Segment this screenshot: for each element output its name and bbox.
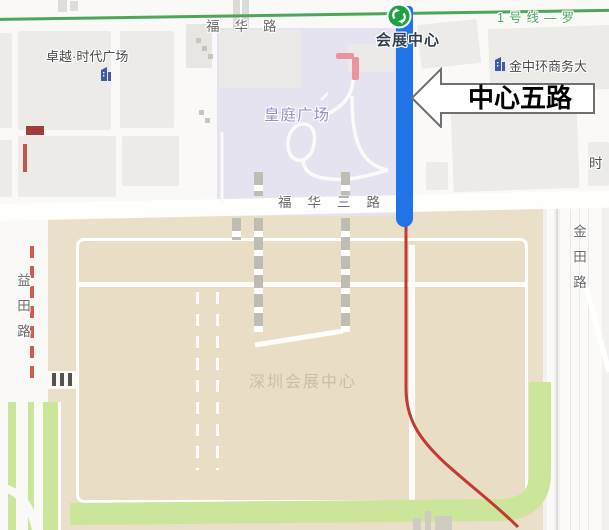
pink-marker (352, 57, 359, 80)
map-decoration (70, 1, 78, 11)
station-label-huizhanzhongxin: 会展中心 (376, 29, 440, 50)
map-decoration (413, 518, 421, 530)
building-icon (99, 66, 112, 81)
map-decoration (196, 38, 201, 43)
dashed-road (254, 172, 263, 196)
map-decoration (199, 110, 204, 115)
poi-label-zhuoyue: 卓越·时代广场 (46, 46, 128, 65)
poi-label-szcec: 深圳会展中心 (249, 368, 357, 392)
metro-station-icon[interactable] (386, 3, 412, 29)
metro-line-label: 1号线—罗 (497, 7, 579, 26)
pink-marker (336, 53, 354, 59)
map-decoration (425, 511, 431, 530)
road-label-yitian: 益田路 (12, 273, 32, 350)
map-decoration (205, 118, 210, 123)
road-label-fuhua3: 福华三路 (278, 191, 396, 211)
map-decoration (435, 516, 452, 530)
map-decoration (208, 54, 213, 59)
dashed-road (232, 218, 241, 240)
road-label-jintian: 金田路 (568, 224, 588, 301)
park-band (70, 382, 540, 514)
road-label-fuhua: 福华路 (206, 15, 292, 35)
callout-label: 中心五路 (446, 84, 594, 112)
poi-label-partial: 时 (589, 152, 603, 172)
dashed-road (254, 218, 263, 332)
dashed-road (341, 218, 350, 332)
route-secondary (406, 224, 518, 527)
red-mark (23, 144, 27, 172)
map-decoration (202, 46, 207, 51)
rail-tick (52, 373, 56, 386)
rail-tick (60, 373, 64, 386)
map-canvas[interactable]: 福华路 1号线—罗 会展中心 卓越·时代广场 金中环商务大 时 皇庭广场 福华三… (0, 0, 609, 530)
poi-label-huangting: 皇庭广场 (264, 103, 330, 125)
rail-tick (68, 373, 72, 386)
red-mark (26, 126, 44, 135)
map-decoration (58, 0, 67, 12)
